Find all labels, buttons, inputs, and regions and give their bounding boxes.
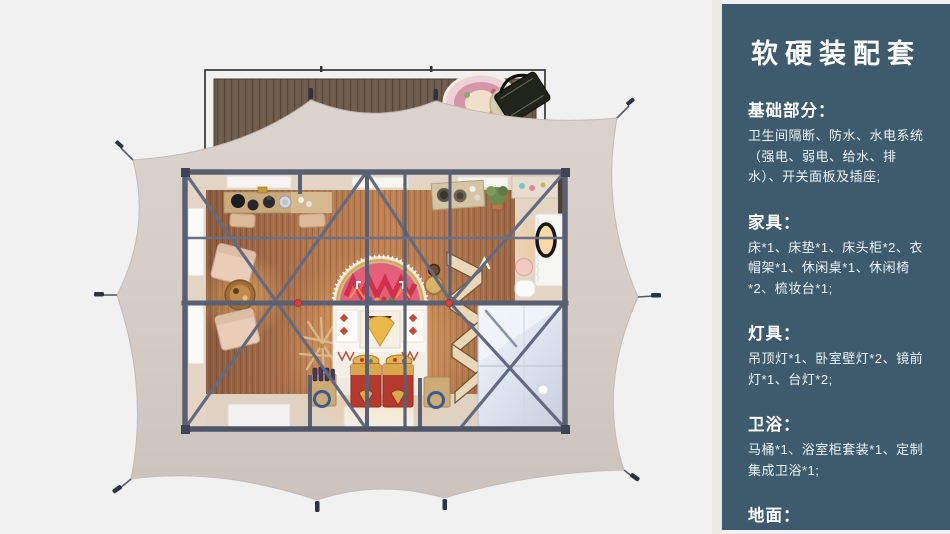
sidebar: 软硬装配套 基础部分： 卫生间隔断、防水、水电系统（强电、弱电、给水、排水）、开… — [722, 4, 950, 530]
section-lighting-heading: 灯具： — [748, 320, 928, 344]
section-flooring-heading: 地面： — [748, 502, 928, 526]
vanity-chair — [515, 280, 535, 297]
page-root: 软硬装配套 基础部分： 卫生间隔断、防水、水电系统（强电、弱电、给水、排水）、开… — [0, 0, 950, 534]
vanity-stool — [516, 259, 533, 276]
section-lighting: 灯具： 吊顶灯*1、卧室壁灯*2、镜前灯*1、台灯*2; — [748, 320, 928, 390]
section-furniture-body: 床*1、床垫*1、床头柜*2、衣帽架*1、休闲桌*1、休闲椅*2、梳妆台*1; — [748, 238, 928, 300]
section-basics: 基础部分： 卫生间隔断、防水、水电系统（强电、弱电、给水、排水）、开关面板及插座… — [748, 97, 928, 188]
oval-mirror — [537, 224, 555, 256]
floorplan-svg — [0, 0, 712, 534]
bathroom-unit — [478, 303, 566, 427]
section-basics-heading: 基础部分： — [748, 97, 928, 121]
section-flooring: 地面： 强化木地板、卫生间防滑防潮石塑板; — [748, 502, 928, 534]
divider-strip — [712, 0, 722, 534]
washstand — [431, 180, 485, 210]
section-bathroom-heading: 卫浴： — [748, 411, 928, 435]
section-furniture-heading: 家具： — [748, 209, 928, 233]
section-lighting-body: 吊顶灯*1、卧室壁灯*2、镜前灯*1、台灯*2; — [748, 349, 928, 390]
section-bathroom-body: 马桶*1、浴室柜套装*1、定制集成卫浴*1; — [748, 440, 928, 481]
section-furniture: 家具： 床*1、床垫*1、床头柜*2、衣帽架*1、休闲桌*1、休闲椅*2、梳妆台… — [748, 209, 928, 300]
floorplan-scene — [0, 0, 712, 534]
section-bathroom: 卫浴： 马桶*1、浴室柜套装*1、定制集成卫浴*1; — [748, 411, 928, 481]
section-basics-body: 卫生间隔断、防水、水电系统（强电、弱电、给水、排水）、开关面板及插座; — [748, 126, 928, 188]
sidebar-title: 软硬装配套 — [744, 32, 928, 71]
